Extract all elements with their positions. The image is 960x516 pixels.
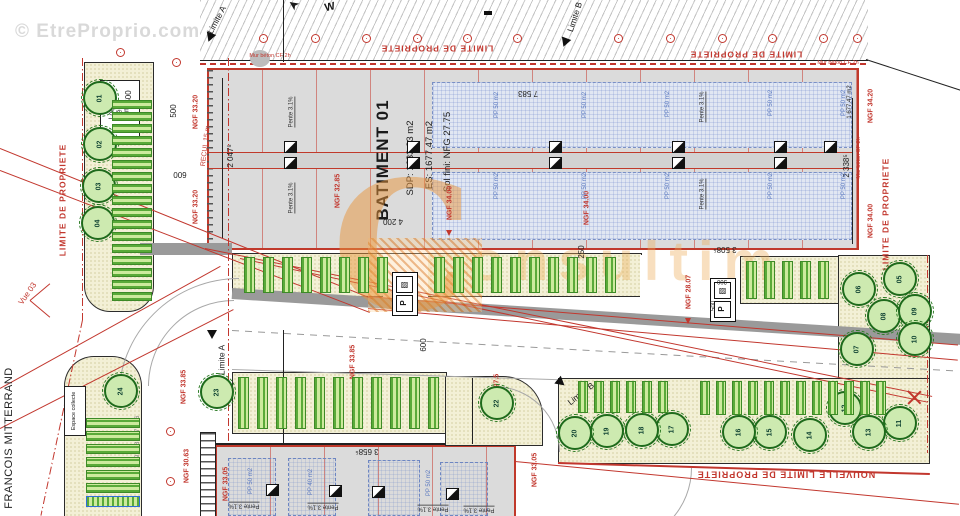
pente-slope-label: Pente 3.1% (463, 505, 494, 512)
hedge-bar (390, 377, 401, 429)
tree: 17 (655, 412, 689, 446)
ngf-elevation-label: NGF 28.07 (685, 275, 692, 309)
pp-area-label: PP 50 m2 (665, 91, 671, 117)
hedge-bar (112, 148, 152, 157)
hedge-bar (320, 257, 331, 293)
dimension-label: 250 (578, 245, 586, 258)
roof-hatch-symbol (407, 157, 420, 169)
hedge-bar (371, 377, 382, 429)
tree-number: 15 (766, 428, 773, 436)
hedge-bar (748, 381, 758, 415)
tree: 04 (81, 206, 115, 240)
survey-point-marker (172, 58, 181, 67)
tree: 08 (867, 299, 901, 333)
dimension-label: 1 677.47 m2 (847, 85, 853, 118)
hedge-bar (282, 257, 293, 293)
hedge-bar (453, 257, 464, 293)
pente-slope-label: Pente 3.1% (699, 91, 706, 122)
pp-area-label: PP 50 m2 (426, 470, 432, 496)
hedge-bar (796, 381, 806, 415)
hedge-bar (333, 377, 344, 429)
hedge-bar (732, 381, 742, 415)
roof-hatch-symbol (446, 488, 459, 500)
hedge-bar (764, 381, 774, 415)
hedge-bar (314, 377, 325, 429)
tree-number: 09 (911, 307, 918, 315)
hedge-bar (828, 381, 838, 415)
pp-area-label: PP 50 m2 (494, 92, 500, 118)
roof-hatch-symbol (549, 141, 562, 153)
pp-area-label: PP 50 m2 (494, 173, 500, 199)
pp-area-label: PP 50 m2 (248, 468, 254, 494)
survey-point-marker (166, 477, 175, 486)
hedge-bar (844, 381, 854, 415)
hedge-bar (529, 257, 540, 293)
dimension-label: 2 047⁵ (227, 144, 235, 167)
dimension-label: 3 508⁵ (713, 245, 736, 253)
tree-number: 05 (896, 275, 903, 283)
hedge-bar (567, 257, 578, 293)
pente-slope-label: Pente 3.1% (417, 504, 448, 511)
roof-hatch-symbol (372, 486, 385, 498)
roof-hatch-symbol (266, 484, 279, 496)
survey-point-marker (413, 34, 422, 43)
survey-point-marker (362, 34, 371, 43)
pp-area-label: PP 50 m2 (841, 90, 847, 116)
hedge-bar (112, 256, 152, 265)
hedge-bar (112, 244, 152, 253)
ngf-elevation-label: NGF 33.85 (180, 370, 187, 404)
tree: 13 (852, 415, 886, 449)
roof-hatch-symbol (329, 485, 342, 497)
hedge-bar (86, 457, 140, 467)
ngf-elevation-label: NGF 33.20 (192, 190, 199, 224)
hedge-bar (491, 257, 502, 293)
hedge-bar (586, 257, 597, 293)
hedge-bar (700, 381, 710, 415)
pente-slope-label: Pente 3.1% (288, 96, 295, 127)
survey-point-marker (116, 48, 125, 57)
annotation-layer: NGF 33.20NGF 33.20NGF 32.85NGF 34.00NGF … (0, 0, 960, 516)
hedge-bar (594, 381, 604, 413)
survey-point-marker (819, 34, 828, 43)
tree: 07 (840, 332, 874, 366)
survey-point-marker (513, 34, 522, 43)
hedge-bar (112, 220, 152, 229)
tree: 03 (82, 169, 116, 203)
dimension-label: 4 200 (383, 217, 403, 225)
survey-point-marker (311, 34, 320, 43)
tree: 18 (625, 413, 659, 447)
hedge-bar (642, 381, 652, 413)
hedge-bar (377, 257, 388, 293)
pente-slope-label: Pente 3.1% (228, 501, 259, 508)
hedge-bar (112, 160, 152, 169)
hedge-bar (472, 257, 483, 293)
hedge-bar (86, 444, 140, 454)
hedge-bar (818, 261, 829, 299)
survey-point-marker (259, 34, 268, 43)
dimension-label: 500 (170, 104, 178, 117)
ngf-elevation-label: NGF 34.00 (446, 186, 453, 220)
ngf-elevation-label: NGF 33.20 (192, 95, 199, 129)
pp-area-label: PP 50 m2 (665, 173, 671, 199)
pente-slope-label: Pente 3.1% (307, 502, 338, 509)
hedge-bar (301, 257, 312, 293)
pp-area-label: PP 50 m2 (768, 173, 774, 199)
survey-point-marker (614, 34, 623, 43)
tree: 20 (558, 416, 592, 450)
ngf-elevation-label: NGF 32.85 (334, 174, 341, 208)
hedge-bar (626, 381, 636, 413)
hedge-bar (238, 377, 249, 429)
dimension-label: 3 658⁵ (355, 447, 378, 455)
hedge-bar (112, 124, 152, 133)
dimension-label: 600 (173, 170, 186, 178)
pp-area-label: PP 40 m2 (308, 469, 314, 495)
hedge-bar (112, 112, 152, 121)
hedge-bar (339, 257, 350, 293)
hedge-bar (263, 257, 274, 293)
tree: 01 (83, 81, 117, 115)
hedge-bar (434, 257, 445, 293)
tree-number: 23 (213, 388, 220, 396)
roof-hatch-symbol (549, 157, 562, 169)
site-plan: BATIMENT 01 SDP: 1633.33 m2 ES: 1677.47 … (0, 0, 960, 516)
ngf-elevation-label: NGF 33.05 (531, 453, 538, 487)
tree-number: 11 (897, 419, 904, 426)
roof-hatch-symbol (774, 141, 787, 153)
hedge-bar (800, 261, 811, 299)
tree-number: 20 (571, 429, 578, 437)
survey-point-marker (768, 34, 777, 43)
hedge-bar (358, 257, 369, 293)
roof-hatch-symbol (672, 141, 685, 153)
hedge-bar (610, 381, 620, 413)
hedge-bar (86, 470, 140, 480)
survey-point-marker (853, 34, 862, 43)
tree-number: 01 (96, 94, 103, 102)
hedge-bar (578, 381, 588, 413)
tree: 19 (590, 414, 624, 448)
survey-point-marker (666, 34, 675, 43)
survey-point-marker (718, 34, 727, 43)
hedge-bar (112, 136, 152, 145)
hedge-bar (86, 483, 140, 493)
tree: 24 (104, 374, 138, 408)
hedge-bar (782, 261, 793, 299)
dimension-label: 500 (711, 301, 717, 311)
hedge-bar (112, 196, 152, 205)
roof-hatch-symbol (774, 157, 787, 169)
roof-hatch-symbol (672, 157, 685, 169)
hedge-bar (716, 381, 726, 415)
tree: 05 (883, 262, 917, 296)
tree: 22 (480, 386, 514, 420)
tree-number: 08 (880, 312, 887, 320)
pp-area-label: PP 50 m2 (582, 92, 588, 118)
tree-number: 04 (94, 219, 101, 227)
hedge-bar (276, 377, 287, 429)
hedge-bar (112, 184, 152, 193)
pente-slope-label: Pente 3.1% (699, 178, 706, 209)
ngf-elevation-label: NGF 30.63 (183, 449, 190, 483)
tree-number: 17 (668, 425, 675, 433)
tree-number: 19 (603, 427, 610, 435)
ngf-elevation-label: NGF 33.05 (222, 467, 229, 501)
tree: 14 (793, 418, 827, 452)
hedge-bar (428, 377, 439, 429)
hedge-bar (112, 208, 152, 217)
hedge-bar (257, 377, 268, 429)
hedge-bar (112, 292, 152, 301)
pente-slope-label: Pente 3.1% (288, 182, 295, 213)
hedge-bar (764, 261, 775, 299)
tree: 11 (883, 406, 917, 440)
dimension-label: 600 (420, 338, 428, 351)
tree: 16 (722, 415, 756, 449)
hedge-bar (295, 377, 306, 429)
hedge-bar (86, 431, 140, 441)
dimension-label: 7 583 (518, 89, 538, 97)
hedge-bar (409, 377, 420, 429)
hedge-bar (86, 418, 140, 428)
tree-number: 10 (911, 335, 918, 343)
hedge-bar (244, 257, 255, 293)
roof-hatch-symbol (284, 157, 297, 169)
hedge-bar (352, 377, 363, 429)
roof-hatch-symbol (824, 141, 837, 153)
ngf-elevation-label: NGF 33.85 (349, 345, 356, 379)
roof-hatch-symbol (407, 141, 420, 153)
tree-number: 18 (638, 426, 645, 434)
hedge-bar (746, 261, 757, 299)
pp-area-label: PP 50 m2 (768, 90, 774, 116)
dimension-label: 300 (717, 278, 727, 284)
tree-number: 14 (806, 431, 813, 439)
pp-area-label: PP 50 m2 (841, 173, 847, 199)
hedge-bar (112, 232, 152, 241)
survey-point-marker (463, 34, 472, 43)
pp-area-label: PP 50 m2 (582, 173, 588, 199)
tree-number: 07 (853, 345, 860, 353)
tree-number: 16 (735, 428, 742, 436)
survey-point-marker (166, 427, 175, 436)
tree: 06 (842, 272, 876, 306)
hedge-bar (658, 381, 668, 413)
tree-number: 22 (493, 399, 500, 407)
ngf-elevation-label: NGF 34.00 (867, 204, 874, 238)
tree: 15 (753, 415, 787, 449)
hedge-bar (510, 257, 521, 293)
roof-hatch-symbol (284, 141, 297, 153)
hedge-bar (812, 381, 822, 415)
tree-number: 24 (117, 387, 124, 395)
tree-number: 06 (855, 285, 862, 293)
hedge-bar (112, 100, 152, 109)
tree: 23 (200, 375, 234, 409)
hedge-bar (780, 381, 790, 415)
hedge-bar (876, 381, 886, 415)
tree-number: 03 (95, 182, 102, 190)
ngf-elevation-label: NGF 34.20 (867, 89, 874, 123)
hedge-bar (112, 280, 152, 289)
hedge-bar (860, 381, 870, 415)
tree-number: 02 (96, 140, 103, 148)
hedge-bar (605, 257, 616, 293)
hedge-bar (548, 257, 559, 293)
hedge-bar (112, 172, 152, 181)
tree-number: 13 (865, 428, 872, 436)
tree: 10 (898, 322, 932, 356)
hedge-bar (112, 268, 152, 277)
